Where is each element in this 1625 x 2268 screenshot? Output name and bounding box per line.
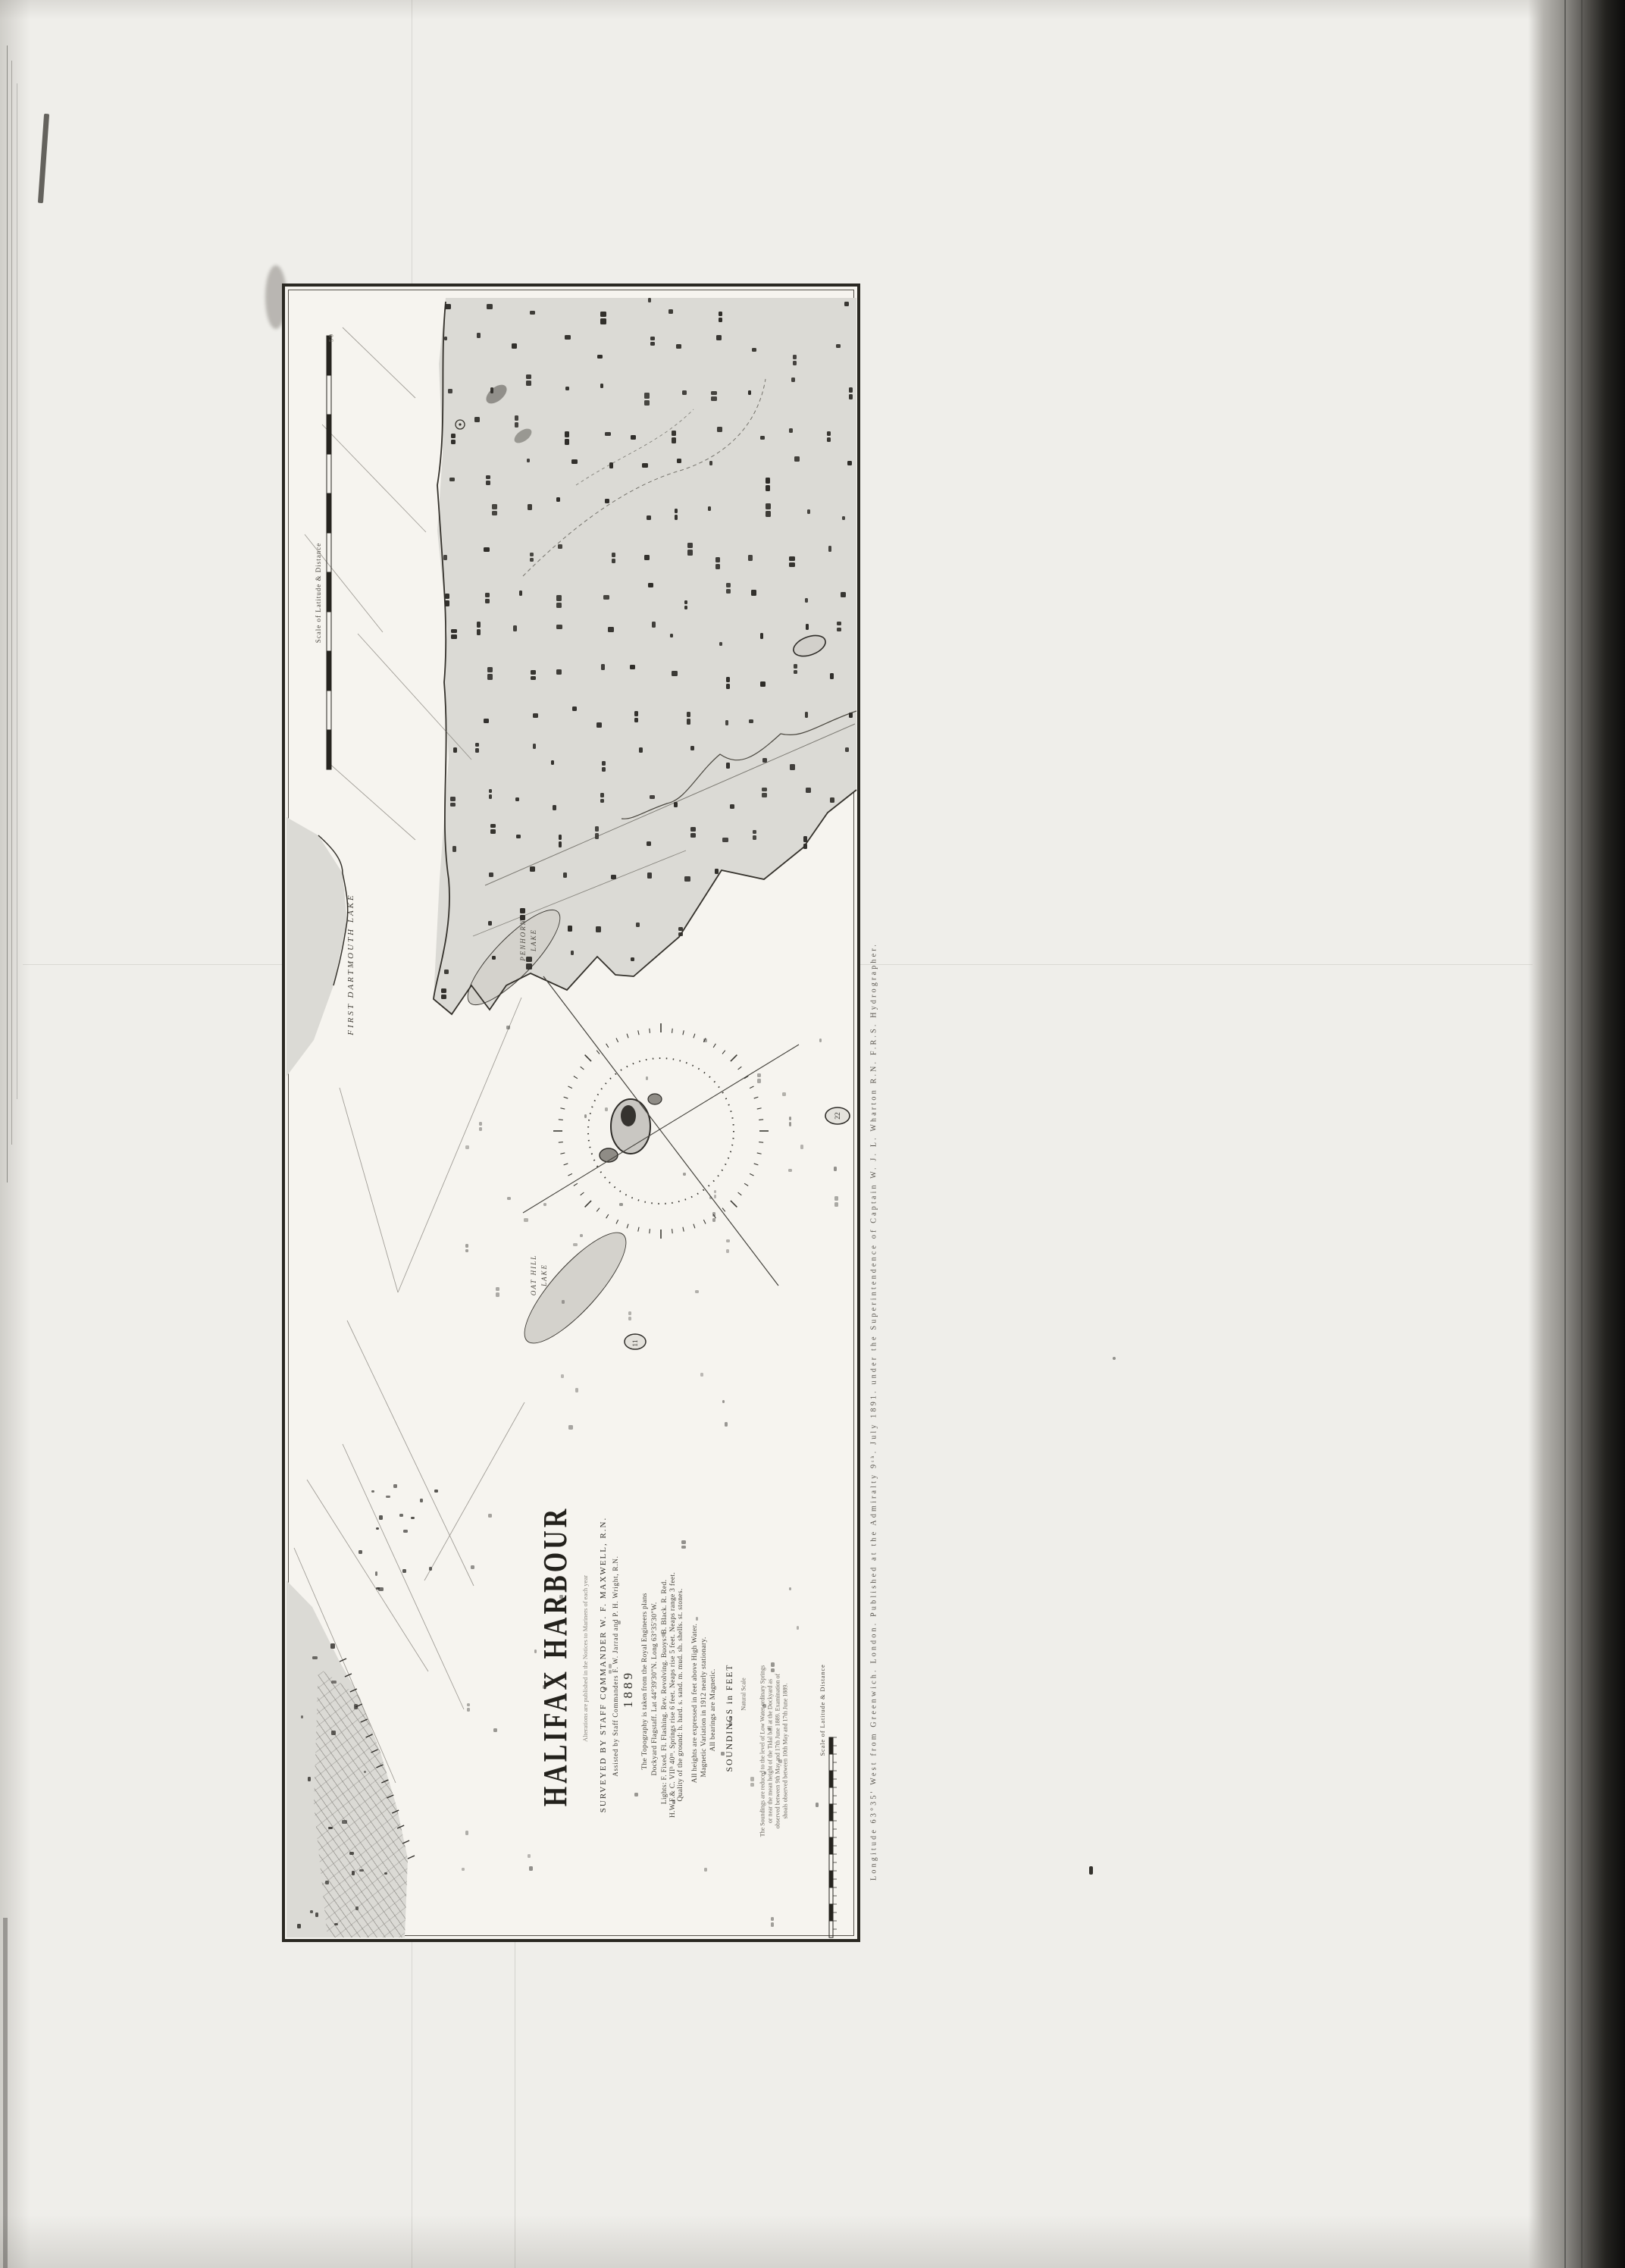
scale-bar-upper-segment — [327, 493, 331, 533]
lake-label-penhorn: PENHORN — [519, 919, 527, 961]
compass-bearing-line — [523, 1045, 799, 1213]
compass-tick — [672, 1229, 673, 1233]
compass-tick — [757, 1108, 762, 1109]
compass-tick — [754, 1164, 759, 1165]
compass-tick — [694, 1224, 695, 1229]
islet — [600, 1148, 618, 1162]
wharf-tick — [402, 1840, 409, 1844]
compass-tick — [703, 1220, 706, 1223]
book-edge — [1528, 0, 1625, 2268]
compass-tick — [596, 1051, 600, 1054]
compass-tick — [722, 1208, 725, 1212]
hill-shading — [512, 426, 534, 446]
chart-note: Quality of the ground: h. hard. s. sand.… — [677, 1589, 684, 1802]
scale-bar-lower-segment — [829, 1771, 833, 1787]
wharf-tick — [361, 1719, 368, 1722]
lake-label-oat-hill-2: LAKE — [540, 1264, 548, 1286]
compass-tick — [744, 1183, 748, 1186]
compass-tick — [738, 1067, 742, 1070]
compass-tick — [650, 1229, 650, 1233]
soundings-unit-label: SOUNDINGS in FEET — [725, 1664, 734, 1772]
wharf-tick — [408, 1856, 415, 1859]
scale-bar-lower-segment — [829, 1854, 833, 1871]
scale-bar-upper-segment — [327, 691, 331, 730]
compass-tick — [672, 1029, 673, 1033]
compass-tick — [757, 1153, 762, 1154]
compass-tick — [616, 1038, 618, 1042]
scale-bar-lower-segment — [829, 1871, 833, 1887]
scale-bar-upper-segment — [327, 651, 331, 691]
book-edge-streak — [1564, 0, 1566, 2268]
islet-depth-label: 11 — [632, 1339, 640, 1346]
scale-bar-upper-segment — [327, 572, 331, 612]
scale-bar-lower-segment — [829, 1837, 833, 1854]
scale-bar-upper-segment — [327, 415, 331, 454]
compass-tick — [581, 1067, 584, 1070]
wharf-tick — [345, 1674, 352, 1677]
compass-tick — [759, 1142, 763, 1143]
assist-credit: Assisted by Staff Commanders F. W. Jarra… — [612, 1555, 619, 1776]
compass-tick — [731, 1201, 737, 1207]
ink-fleck — [1089, 1866, 1093, 1875]
islet-depth-label: 22 — [834, 1112, 842, 1120]
chart-note: All bearings are Magnetic. — [709, 1668, 717, 1751]
wharf-tick — [376, 1765, 383, 1768]
compass-tick — [581, 1192, 584, 1195]
contour-line — [523, 379, 766, 576]
compass-tick — [568, 1086, 571, 1089]
chart-note: The Topography is taken from the Royal E… — [641, 1593, 649, 1769]
compass-tick — [560, 1108, 565, 1109]
chart-note: Lights: F. Fixed. Fl. Flashing. Rev. Rev… — [661, 1580, 668, 1805]
scale-bar-lower-segment — [829, 1904, 833, 1921]
compass-tick — [568, 1173, 571, 1176]
compass-tick — [683, 1227, 684, 1232]
compass-tick — [713, 1214, 715, 1218]
natural-scale-label: Natural Scale — [740, 1678, 747, 1710]
tide-note-line: observed between 9th May and 17th June 1… — [775, 1674, 781, 1828]
islet — [648, 1094, 662, 1104]
compass-tick — [560, 1153, 565, 1154]
compass-tick — [574, 1076, 578, 1079]
compass-tick — [616, 1220, 618, 1223]
chart-note: All heights are expressed in feet above … — [691, 1624, 699, 1783]
wharf-tick — [392, 1810, 399, 1813]
scale-bar-lower-segment — [829, 1821, 833, 1837]
beacon-dot-icon — [459, 423, 461, 425]
scale-bar-lower-segment — [829, 1921, 833, 1938]
road — [485, 724, 855, 885]
compass-rose — [523, 976, 799, 1286]
road-network — [294, 327, 524, 1783]
island-hill — [621, 1105, 636, 1126]
ink-fleck — [1113, 1357, 1116, 1360]
compass-tick — [606, 1044, 609, 1048]
scale-end-numbers: 5 0 — [328, 334, 335, 342]
scale-bar-lower-segment — [829, 1804, 833, 1821]
wharf-tick — [381, 1780, 388, 1783]
shoreline — [434, 302, 856, 1014]
chart-title: HALIFAX HARBOUR — [537, 1506, 575, 1807]
scale-bar-upper-segment — [327, 375, 331, 415]
scale-bar-lower-segment — [829, 1737, 833, 1754]
chart-linework — [0, 0, 1625, 2268]
compass-tick — [650, 1029, 650, 1033]
compass-tick — [638, 1227, 639, 1232]
tide-note-line: or near the mean height of the Tidal bal… — [767, 1679, 774, 1823]
compass-tick — [722, 1051, 725, 1054]
scale-label-lower: Scale of Latitude & Distance — [819, 1664, 826, 1756]
road — [622, 711, 856, 819]
tide-note-line: The Soundings are reduced to the level o… — [759, 1665, 766, 1837]
scale-bar-lower-segment — [829, 1887, 833, 1904]
compass-tick — [606, 1214, 609, 1218]
wharf-tick — [371, 1750, 378, 1753]
compass-tick — [713, 1044, 715, 1048]
compass-tick — [638, 1030, 639, 1035]
wharf-tick — [355, 1704, 362, 1707]
islet — [791, 631, 828, 660]
compass-tick — [627, 1224, 628, 1229]
compass-tick — [559, 1142, 563, 1143]
admiralty-imprint: Longitude 63°35' West from Greenwich. Lo… — [870, 942, 878, 1881]
compass-tick — [731, 1055, 737, 1061]
book-edge-streak — [1581, 0, 1583, 2268]
lake-label-first-dartmouth: FIRST DARTMOUTH LAKE — [346, 893, 355, 1035]
compass-tick — [703, 1038, 706, 1042]
wharf-tick — [366, 1734, 373, 1737]
compass-tick — [683, 1030, 684, 1035]
scale-bar-upper-segment — [327, 730, 331, 769]
compass-tick — [759, 1120, 763, 1120]
alterations-note: Alterations are published in the Notices… — [581, 1575, 589, 1742]
lake-label-penhorn-2: LAKE — [530, 929, 537, 951]
compass-tick — [564, 1097, 568, 1098]
scale-bar-upper-segment — [327, 612, 331, 651]
wharf-tick — [397, 1825, 404, 1828]
compass-tick — [694, 1034, 695, 1038]
scanned-page: HALIFAX HARBOUR Alterations are publishe… — [0, 0, 1625, 2268]
compass-tick — [559, 1120, 563, 1120]
scale-bar-upper-segment — [327, 454, 331, 493]
compass-tick — [750, 1173, 753, 1176]
compass-tick — [627, 1034, 628, 1038]
compass-tick — [596, 1208, 600, 1212]
compass-tick — [585, 1201, 591, 1207]
compass-bearing-line — [543, 976, 778, 1286]
hill-shading — [483, 381, 510, 407]
compass-tick — [585, 1055, 591, 1061]
lake-label-oat-hill: OAT HILL — [530, 1255, 537, 1295]
tide-note-line: shoals observed between 10th May and 17t… — [782, 1684, 789, 1819]
scale-bar-lower-segment — [829, 1754, 833, 1771]
road — [473, 850, 686, 936]
chart-note: H.W.F.& C. VIIʰ 40ᵐ. Springs rise 6 feet… — [669, 1572, 677, 1818]
compass-tick — [750, 1086, 753, 1089]
compass-tick — [574, 1183, 578, 1186]
chart-note: Magnetic Variation in 1912 nearly statio… — [700, 1637, 708, 1777]
scale-label-upper: Scale of Latitude & Distance — [315, 543, 322, 643]
scale-bar-lower-segment — [829, 1787, 833, 1804]
contour-line — [576, 409, 694, 485]
lake-shoreline — [318, 835, 348, 985]
compass-tick — [738, 1192, 742, 1195]
survey-credit: SURVEYED BY STAFF COMMANDER W. F. MAXWEL… — [599, 1517, 608, 1812]
survey-year: 1889 — [621, 1670, 636, 1708]
compass-tick — [564, 1164, 568, 1165]
chart-note: Dockyard Flagstaff. Lat 44°39'30"N. Long… — [651, 1602, 659, 1775]
wharf-tick — [387, 1795, 393, 1798]
compass-tick — [754, 1097, 759, 1098]
